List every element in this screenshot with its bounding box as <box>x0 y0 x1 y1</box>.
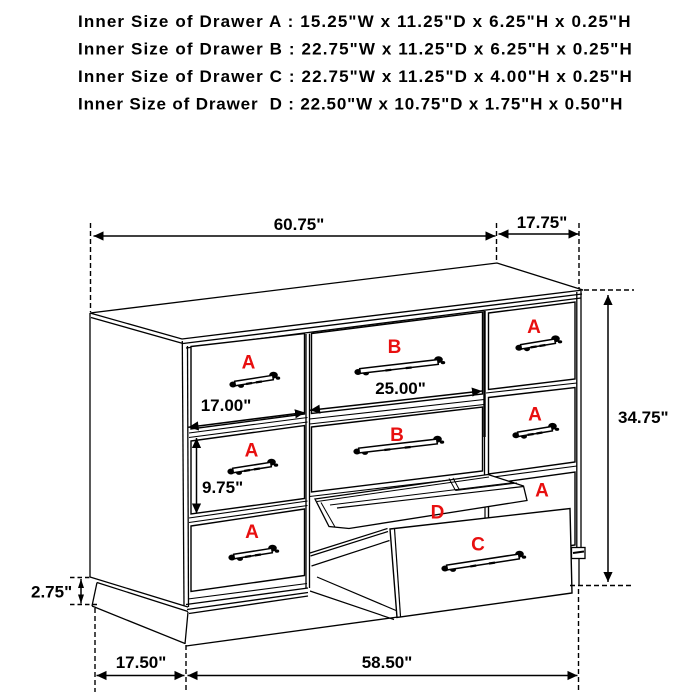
svg-text:B: B <box>390 425 404 446</box>
svg-text:A: A <box>245 441 259 462</box>
svg-text:Inner Size of Drawer A : 15.25: Inner Size of Drawer A : 15.25"W x 11.25… <box>78 12 632 31</box>
svg-text:C: C <box>471 535 485 556</box>
svg-text:D: D <box>431 503 445 524</box>
svg-text:Inner Size of Drawer D : 22.5: Inner Size of Drawer D : 22.50"W x 10.75… <box>78 95 623 114</box>
svg-text:17.75": 17.75" <box>517 213 568 232</box>
svg-text:A: A <box>528 405 542 426</box>
svg-text:A: A <box>242 353 256 374</box>
svg-text:A: A <box>245 522 259 543</box>
svg-text:B: B <box>388 337 402 358</box>
svg-text:17.00": 17.00" <box>201 396 252 415</box>
svg-text:60.75": 60.75" <box>274 215 325 234</box>
svg-text:A: A <box>535 481 549 502</box>
svg-text:17.50": 17.50" <box>116 653 167 672</box>
svg-text:A: A <box>527 317 541 338</box>
svg-text:2.75": 2.75" <box>31 583 72 602</box>
svg-text:Inner Size of Drawer C : 22.75: Inner Size of Drawer C : 22.75"W x 11.25… <box>78 67 633 86</box>
svg-text:34.75": 34.75" <box>618 408 669 427</box>
svg-text:Inner Size of Drawer B : 22.75: Inner Size of Drawer B : 22.75"W x 11.25… <box>78 40 633 59</box>
svg-text:58.50": 58.50" <box>362 653 413 672</box>
svg-text:9.75": 9.75" <box>202 478 243 497</box>
svg-text:25.00": 25.00" <box>375 379 426 398</box>
